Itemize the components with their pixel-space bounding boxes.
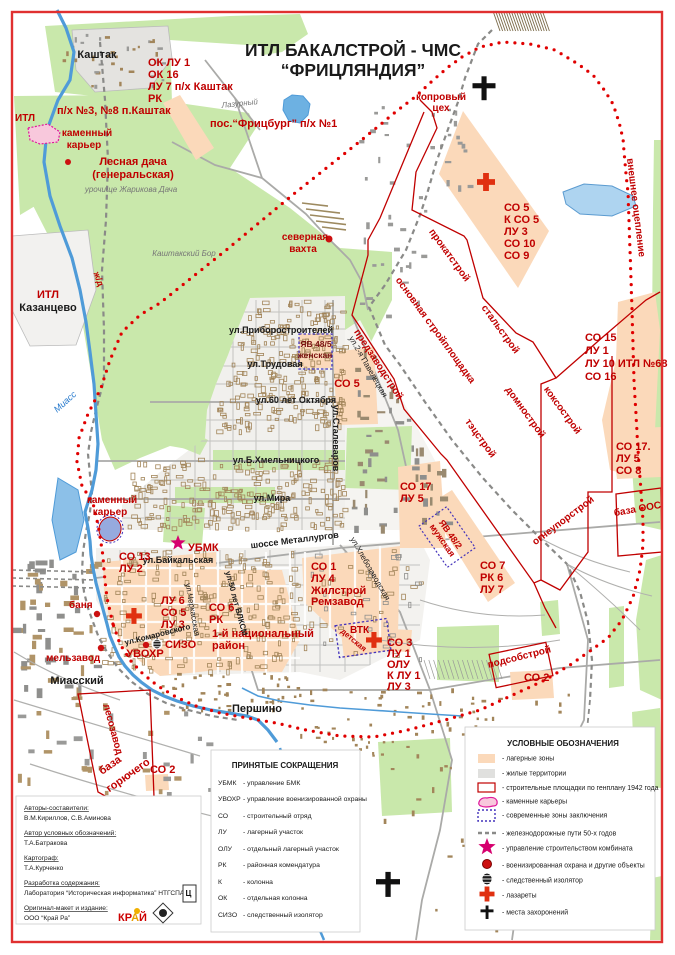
svg-text:- управление БМК: - управление БМК xyxy=(243,780,300,787)
svg-text:СО 8: СО 8 xyxy=(616,465,641,477)
svg-text:- современные зоны заключения: - современные зоны заключения xyxy=(502,813,608,820)
svg-text:- следственный изолятор: - следственный изолятор xyxy=(502,877,583,885)
svg-text:УВОХР: УВОХР xyxy=(218,796,241,803)
svg-text:СО 5: СО 5 xyxy=(161,607,186,619)
svg-text:Автор условных обозначений:: Автор условных обозначений: xyxy=(24,829,116,837)
svg-text:- железнодорожные пути 50-х г: - железнодорожные пути 50-х годов xyxy=(502,831,617,838)
svg-text:ЛУ 2: ЛУ 2 xyxy=(119,563,143,575)
svg-text:цех: цех xyxy=(432,103,450,114)
svg-text:СО 17.: СО 17. xyxy=(616,441,651,453)
svg-text:ЛУ 1: ЛУ 1 xyxy=(585,345,609,357)
svg-text:СО 7: СО 7 xyxy=(480,560,505,572)
svg-text:ПРИНЯТЫЕ СОКРАЩЕНИЯ: ПРИНЯТЫЕ СОКРАЩЕНИЯ xyxy=(232,761,339,770)
svg-text:РК: РК xyxy=(148,93,162,105)
svg-text:СО 15: СО 15 xyxy=(585,332,617,344)
svg-text:Каштакский Бор: Каштакский Бор xyxy=(152,249,216,258)
svg-text:ЛУ 5: ЛУ 5 xyxy=(400,493,424,505)
svg-text:КРАЙ: КРАЙ xyxy=(118,911,147,924)
svg-text:ЯВ 48/5: ЯВ 48/5 xyxy=(300,339,331,349)
svg-text:УСЛОВНЫЕ ОБОЗНАЧЕНИЯ: УСЛОВНЫЕ ОБОЗНАЧЕНИЯ xyxy=(507,739,619,748)
svg-text:ул.Сталеваров: ул.Сталеваров xyxy=(331,405,341,472)
svg-text:карьер: карьер xyxy=(67,140,102,151)
svg-text:вахта: вахта xyxy=(289,244,317,255)
svg-text:В.М.Кириллов, С.В.Аминова: В.М.Кириллов, С.В.Аминова xyxy=(24,815,111,822)
svg-text:ОК ЛУ 1: ОК ЛУ 1 xyxy=(148,57,190,69)
svg-text:ОК 16: ОК 16 xyxy=(148,69,179,81)
svg-text:Картограф:: Картограф: xyxy=(24,855,59,862)
svg-text:РК 6: РК 6 xyxy=(480,572,503,584)
svg-text:ОК: ОК xyxy=(218,895,227,902)
svg-text:- жилые территории: - жилые территории xyxy=(502,771,566,778)
svg-text:Каштак: Каштак xyxy=(77,49,117,61)
svg-text:ЛУ 4: ЛУ 4 xyxy=(311,573,336,585)
svg-text:каменный: каменный xyxy=(87,495,137,506)
svg-text:ИТЛ БАКАЛСТРОЙ - ЧМС: ИТЛ БАКАЛСТРОЙ - ЧМС xyxy=(245,39,461,60)
svg-text:СО 9: СО 9 xyxy=(504,250,529,262)
svg-text:СИЗО: СИЗО xyxy=(218,912,237,919)
svg-text:- следственный изолятор: - следственный изолятор xyxy=(243,911,323,919)
svg-text:(генеральская): (генеральская) xyxy=(92,169,174,181)
svg-text:район: район xyxy=(212,640,245,652)
svg-text:Миасский: Миасский xyxy=(50,675,103,687)
svg-text:СО 13: СО 13 xyxy=(119,551,151,563)
svg-text:баня: баня xyxy=(69,599,93,611)
svg-text:- отдельный лагерный участок: - отдельный лагерный участок xyxy=(243,845,339,853)
svg-text:- строительные площадки по ге: - строительные площадки по генплану 1942… xyxy=(502,785,659,792)
svg-text:ул.Трудовая: ул.Трудовая xyxy=(247,359,302,369)
svg-text:- лагерный участок: - лагерный участок xyxy=(243,828,303,836)
svg-text:- управление строительством к: - управление строительством комбината xyxy=(502,845,633,853)
svg-text:Лесная дача: Лесная дача xyxy=(99,156,167,168)
svg-text:СО 5: СО 5 xyxy=(334,378,359,390)
svg-text:- каменные карьеры: - каменные карьеры xyxy=(502,799,567,806)
svg-text:- лагерные зоны: - лагерные зоны xyxy=(502,756,554,763)
svg-text:урочище Жарикова Дача: урочище Жарикова Дача xyxy=(84,185,178,194)
svg-text:ЛУ 7 п/х Каштак: ЛУ 7 п/х Каштак xyxy=(148,81,233,93)
svg-text:Казанцево: Казанцево xyxy=(19,302,77,314)
svg-text:УВОХР: УВОХР xyxy=(126,648,163,660)
svg-text:К СО 5: К СО 5 xyxy=(504,214,539,226)
svg-text:- колонна: - колонна xyxy=(243,879,273,886)
svg-text:К: К xyxy=(218,879,222,886)
svg-text:- военизированная охрана и др: - военизированная охрана и другие объект… xyxy=(502,862,645,870)
svg-text:Авторы-составители:: Авторы-составители: xyxy=(24,805,89,812)
svg-text:карьер: карьер xyxy=(93,507,128,518)
svg-text:РК: РК xyxy=(218,862,227,869)
svg-text:УБМК: УБМК xyxy=(188,542,219,554)
svg-text:- лазареты: - лазареты xyxy=(502,893,537,900)
svg-text:Оригинал-макет и издание:: Оригинал-макет и издание: xyxy=(24,905,108,912)
svg-text:СО 16: СО 16 xyxy=(585,371,617,383)
svg-text:ул.Байкальская: ул.Байкальская xyxy=(143,555,214,565)
svg-text:- отдельная колонна: - отдельная колонна xyxy=(243,895,308,902)
svg-text:СО: СО xyxy=(218,813,228,820)
svg-text:копровый: копровый xyxy=(416,92,466,103)
svg-text:“ФРИЦЛЯНДИЯ”: “ФРИЦЛЯНДИЯ” xyxy=(281,60,426,80)
svg-text:- места захоронений: - места захоронений xyxy=(502,909,568,917)
svg-text:ООО “Край Ра”: ООО “Край Ра” xyxy=(24,914,70,922)
svg-text:УБМК: УБМК xyxy=(218,780,236,787)
svg-text:мельзавод: мельзавод xyxy=(46,653,101,664)
svg-text:- строительный отряд: - строительный отряд xyxy=(243,812,312,820)
svg-text:каменный: каменный xyxy=(62,128,112,139)
svg-text:СО 5: СО 5 xyxy=(504,202,529,214)
svg-text:ул.Мира: ул.Мира xyxy=(254,493,292,503)
svg-text:- районная комендатура: - районная комендатура xyxy=(243,861,320,869)
svg-text:ЛУ 3: ЛУ 3 xyxy=(387,681,411,693)
svg-text:ЛУ 6: ЛУ 6 xyxy=(161,595,185,607)
svg-text:Першино: Першино xyxy=(232,703,282,715)
svg-text:1-й национальный: 1-й национальный xyxy=(212,628,314,640)
svg-text:п/х №3, №8 п.Каштак: п/х №3, №8 п.Каштак xyxy=(57,105,171,117)
svg-text:СО 2: СО 2 xyxy=(150,764,175,776)
svg-text:СО 17: СО 17 xyxy=(400,481,432,493)
svg-text:СО 6: СО 6 xyxy=(209,602,234,614)
svg-text:СО 1: СО 1 xyxy=(311,561,336,573)
svg-text:ЛУ 10 ИТЛ №68: ЛУ 10 ИТЛ №68 xyxy=(585,358,668,370)
svg-text:СИЗО: СИЗО xyxy=(165,639,197,651)
svg-text:ИТЛ: ИТЛ xyxy=(37,289,59,301)
svg-text:ОЛУ: ОЛУ xyxy=(218,846,233,853)
svg-text:Т.А.Батракова: Т.А.Батракова xyxy=(24,840,68,847)
svg-text:ЛУ 5: ЛУ 5 xyxy=(616,453,640,465)
svg-text:ИТЛ: ИТЛ xyxy=(15,113,35,124)
svg-text:ЛУ 3: ЛУ 3 xyxy=(504,226,528,238)
svg-text:северная: северная xyxy=(282,232,328,243)
svg-text:Ц: Ц xyxy=(186,889,192,898)
svg-text:ул.60 лет Октября: ул.60 лет Октября xyxy=(256,395,336,405)
svg-text:ул.Приборостроителей: ул.Приборостроителей xyxy=(229,325,333,335)
svg-text:Т.А.Курченко: Т.А.Курченко xyxy=(24,865,64,872)
svg-text:СО 10: СО 10 xyxy=(504,238,536,250)
svg-text:ЛУ 7: ЛУ 7 xyxy=(480,584,504,596)
svg-text:- управление военизированной о: - управление военизированной охраны xyxy=(243,795,367,803)
svg-text:Разработка содержания:: Разработка содержания: xyxy=(24,879,100,887)
svg-text:Ремзавод: Ремзавод xyxy=(311,596,364,608)
svg-text:РК: РК xyxy=(209,614,223,626)
svg-text:Лаборатория “Историческая инфо: Лаборатория “Историческая информатика” Н… xyxy=(24,889,185,897)
svg-text:СО 2: СО 2 xyxy=(524,672,549,684)
svg-text:ЛУ: ЛУ xyxy=(218,829,227,836)
svg-text:ул.Б.Хмельницкого: ул.Б.Хмельницкого xyxy=(233,455,320,465)
svg-text:пос.“Фрицбург” п/х №1: пос.“Фрицбург” п/х №1 xyxy=(210,118,337,130)
